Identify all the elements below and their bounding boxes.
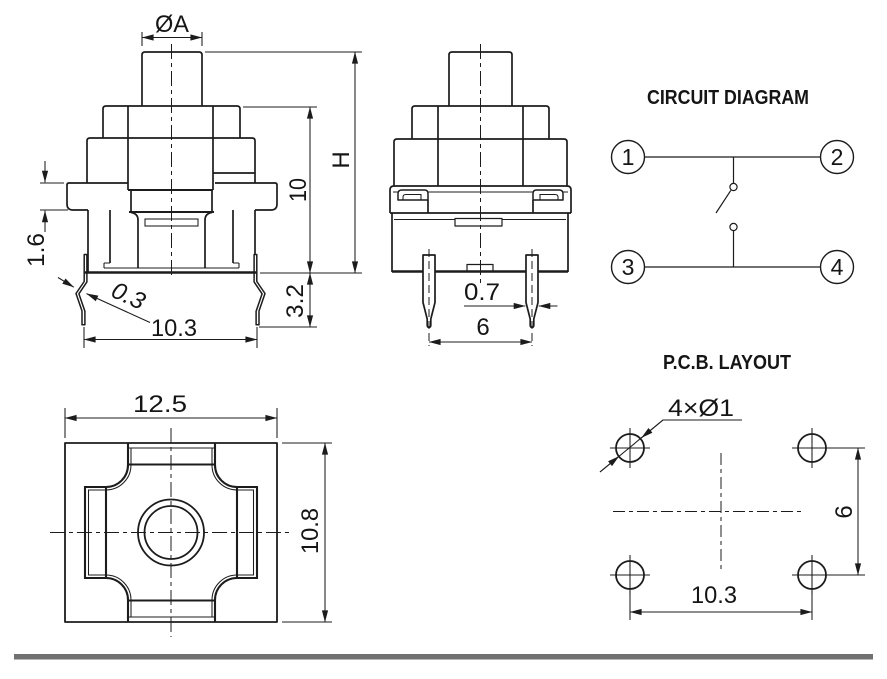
terminal-1-label: 1 [622, 144, 635, 170]
dim-body-height: 10 [285, 178, 312, 202]
dim-pin-pitch: 6 [476, 314, 489, 341]
switch-contact-top [730, 183, 737, 190]
bottom-view: 12.5 10.8 [50, 391, 332, 637]
bottom-centerlines [50, 428, 292, 637]
front-lead-right [254, 255, 265, 325]
dim-lead-protrusion: 3.2 [282, 284, 309, 318]
dim-flange-thickness: 1.6 [23, 233, 50, 267]
dim-pcb-pitch-x: 10.3 [691, 582, 737, 609]
circuit-wires [645, 157, 821, 267]
switch-contact-bottom [730, 223, 737, 230]
pcb-title: P.C.B. LAYOUT [663, 352, 791, 374]
terminal-3-label: 3 [622, 254, 635, 280]
dim-lead-thickness: 0.3 [107, 277, 150, 316]
circuit-diagram: CIRCUIT DIAGRAM 1 2 3 4 [612, 87, 854, 284]
drawing-sheet: ØA H 10 3.2 1.6 0.3 10.3 [0, 0, 887, 679]
dim-lead-pitch: 10.3 [151, 315, 197, 342]
dim-pcb-pitch-y: 6 [831, 505, 858, 518]
circuit-title: CIRCUIT DIAGRAM [647, 87, 809, 109]
side-body-tab [455, 219, 502, 227]
side-view: 0.7 6 [390, 44, 571, 346]
dim-body-width: 12.5 [133, 391, 187, 418]
dim-body-depth: 10.8 [297, 508, 324, 554]
dim-total-height: H [328, 151, 355, 168]
terminal-2-label: 2 [831, 144, 844, 170]
front-inner-shaft [128, 106, 213, 190]
front-view: ØA H 10 3.2 1.6 0.3 10.3 [23, 11, 362, 348]
dim-pin-width: 0.7 [464, 279, 500, 306]
terminal-4-label: 4 [831, 254, 844, 280]
pcb-centerlines [613, 453, 805, 570]
dim-plunger-diameter: ØA [155, 11, 189, 38]
pcb-hole-note: 4×Ø1 [668, 395, 734, 422]
front-housing-notch [213, 173, 255, 183]
technical-drawing: ØA H 10 3.2 1.6 0.3 10.3 [0, 0, 887, 679]
front-lead-left [76, 255, 87, 325]
switch-lever [716, 190, 731, 213]
pcb-layout: P.C.B. LAYOUT 4×Ø1 6 10.3 [600, 352, 865, 620]
separator-bar [14, 654, 873, 660]
